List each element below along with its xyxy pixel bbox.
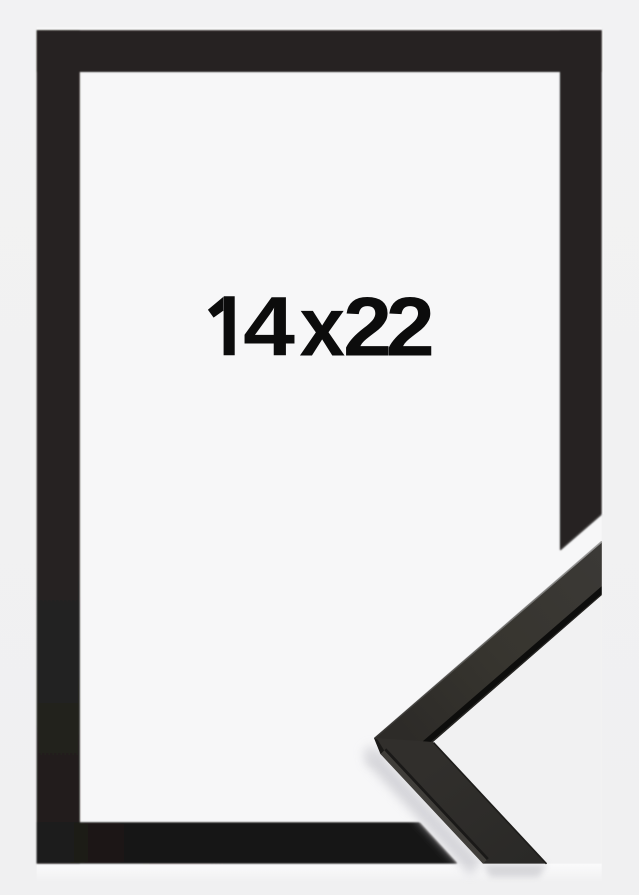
svg-text:4: 4 [243,280,295,374]
svg-text:2: 2 [343,280,392,374]
svg-text:x: x [299,280,345,374]
svg-text:2: 2 [386,280,435,374]
